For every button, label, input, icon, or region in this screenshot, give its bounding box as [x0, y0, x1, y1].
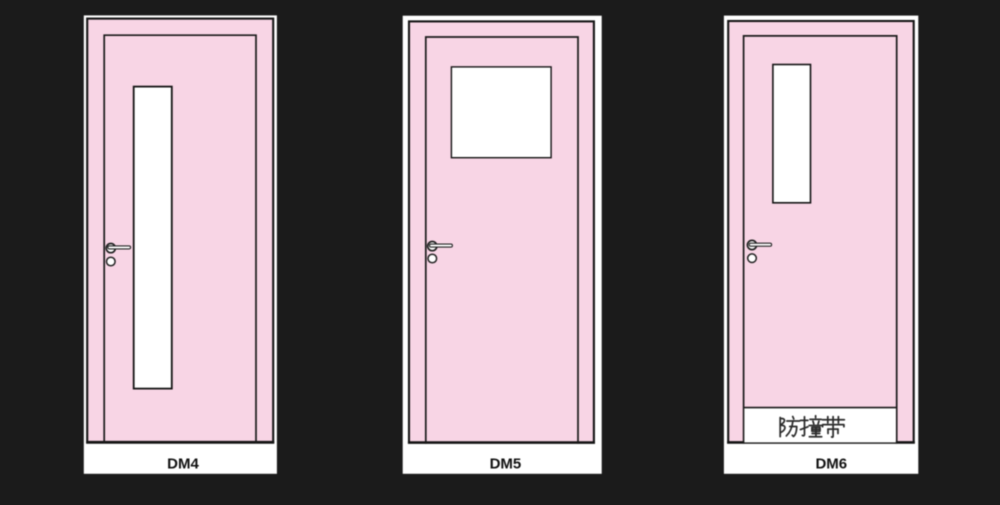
- svg-text:DM5: DM5: [490, 455, 522, 472]
- svg-text:DM4: DM4: [167, 455, 199, 472]
- svg-text:DM6: DM6: [815, 455, 847, 472]
